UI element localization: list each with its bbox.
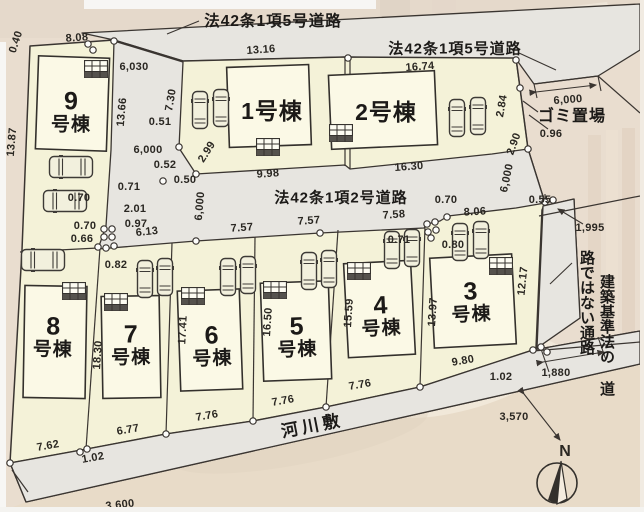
- dim-13-66: 13.66: [115, 97, 129, 127]
- dim-0-96: 0.96: [540, 128, 563, 140]
- building-9-number: 9: [51, 90, 91, 115]
- dim-7-58: 7.58: [382, 208, 405, 222]
- dim-16-74: 16.74: [405, 60, 435, 74]
- dim-0-66: 0.66: [71, 233, 94, 245]
- porch-icon: [490, 258, 513, 275]
- building-4-number: 4: [360, 292, 401, 319]
- dim-6000-garbage: 6,000: [553, 93, 583, 107]
- dim-8-08: 8.08: [65, 31, 88, 45]
- car-icon: [320, 251, 338, 288]
- dim-13-97: 13.97: [426, 297, 440, 327]
- dim-9-98: 9.98: [256, 167, 279, 181]
- porch-icon: [330, 125, 353, 142]
- dim-0-70-b: 0.70: [68, 192, 91, 204]
- building-1-label: 1号棟: [241, 92, 303, 126]
- building-9-label: 9 号棟: [51, 90, 91, 137]
- dim-0-70-c: 0.70: [74, 220, 97, 232]
- dim-6030: 6,030: [119, 61, 148, 73]
- dim-0-80: 0.80: [442, 239, 465, 251]
- dim-0-50: 0.50: [174, 174, 197, 186]
- dim-17-41: 17.41: [176, 315, 190, 345]
- building-3-number: 3: [450, 278, 491, 305]
- porch-icon: [105, 294, 128, 311]
- porch-icon: [257, 139, 280, 156]
- dim-3570: 3,570: [499, 411, 528, 423]
- car-icon: [469, 98, 487, 135]
- dim-2-01: 2.01: [124, 203, 147, 215]
- building-8-suffix: 号棟: [33, 339, 73, 362]
- building-5-number: 5: [276, 314, 317, 340]
- building-7-suffix: 号棟: [111, 347, 151, 370]
- site-plan-drawing: [0, 0, 644, 512]
- building-4-label: 4 号棟: [360, 292, 402, 341]
- dim-13-87: 13.87: [5, 127, 19, 157]
- dim-6-13: 6.13: [135, 225, 159, 239]
- dim-0-55: 0.55: [529, 194, 552, 206]
- car-icon: [219, 259, 237, 296]
- building-3-label: 3 号棟: [450, 278, 492, 327]
- porch-icon: [182, 288, 205, 305]
- dim-0-51: 0.51: [149, 116, 172, 128]
- car-icon: [212, 90, 230, 127]
- dim-0-70-a: 0.70: [435, 194, 458, 206]
- building-6-number: 6: [191, 323, 232, 349]
- porch-icon: [63, 283, 86, 300]
- building-8-label: 8 号棟: [33, 314, 74, 362]
- car-icon: [239, 257, 257, 294]
- porch-icon: [264, 282, 287, 299]
- dim-1-02-b: 1.02: [490, 371, 513, 383]
- building-6-label: 6 号棟: [191, 323, 233, 371]
- dim-15-59: 15.59: [342, 298, 356, 328]
- dim-0-82: 0.82: [105, 259, 128, 271]
- building-5-label: 5 号棟: [276, 314, 318, 362]
- building-6-suffix: 号棟: [192, 348, 233, 371]
- building-2-label: 2号棟: [355, 93, 417, 127]
- dim-0-71-a: 0.71: [118, 181, 141, 193]
- dim-6000-middle: 6,000: [193, 191, 207, 221]
- road-label-route5-top: 法42条1項5号道路: [204, 9, 341, 31]
- dim-8-06: 8.06: [463, 205, 486, 218]
- dim-0-52: 0.52: [154, 159, 177, 171]
- building-7-number: 7: [111, 322, 151, 348]
- dim-16-50: 16.50: [261, 307, 275, 337]
- dim-18-30: 18.30: [91, 340, 105, 370]
- car-icon: [191, 92, 209, 129]
- car-icon: [448, 100, 466, 137]
- car-icon: [50, 155, 93, 179]
- site-plan: 法42条1項5号道路 法42条1項5号道路 法42条1項2号道路 河川敷 ゴミ置…: [0, 0, 644, 512]
- scan-edge-bottom: [0, 507, 644, 512]
- building-8-number: 8: [33, 314, 73, 340]
- building-9-suffix: 号棟: [51, 115, 91, 137]
- dim-7-57-b: 7.57: [230, 221, 253, 235]
- car-icon: [136, 261, 154, 298]
- dim-1880: 1,880: [541, 367, 570, 379]
- passage-note-col-right: 建築基準法の: [598, 250, 615, 364]
- dim-1995: 1,995: [575, 222, 604, 234]
- car-icon: [472, 222, 490, 259]
- passage-note-label: 建築基準法の 道路ではない通路: [576, 250, 616, 408]
- porch-icon: [348, 263, 371, 280]
- dim-7-57-a: 7.57: [297, 214, 320, 228]
- road-label-route5-right: 法42条1項5号道路: [388, 38, 521, 59]
- car-icon: [22, 248, 65, 272]
- dim-6000-a: 6,000: [133, 144, 162, 156]
- building-7-label: 7 号棟: [111, 322, 152, 370]
- building-3-suffix: 号棟: [451, 303, 492, 327]
- road-label-route2-middle: 法42条1項2号道路: [274, 187, 407, 208]
- compass-north-label: N: [559, 443, 571, 461]
- car-icon: [300, 253, 318, 290]
- porch-icon: [85, 61, 108, 78]
- dim-0-71-b: 0.71: [388, 234, 411, 246]
- building-5-suffix: 号棟: [277, 339, 318, 362]
- car-icon: [156, 259, 174, 296]
- dim-16-30: 16.30: [394, 160, 424, 174]
- building-4-suffix: 号棟: [361, 317, 402, 341]
- dim-13-16: 13.16: [246, 43, 276, 57]
